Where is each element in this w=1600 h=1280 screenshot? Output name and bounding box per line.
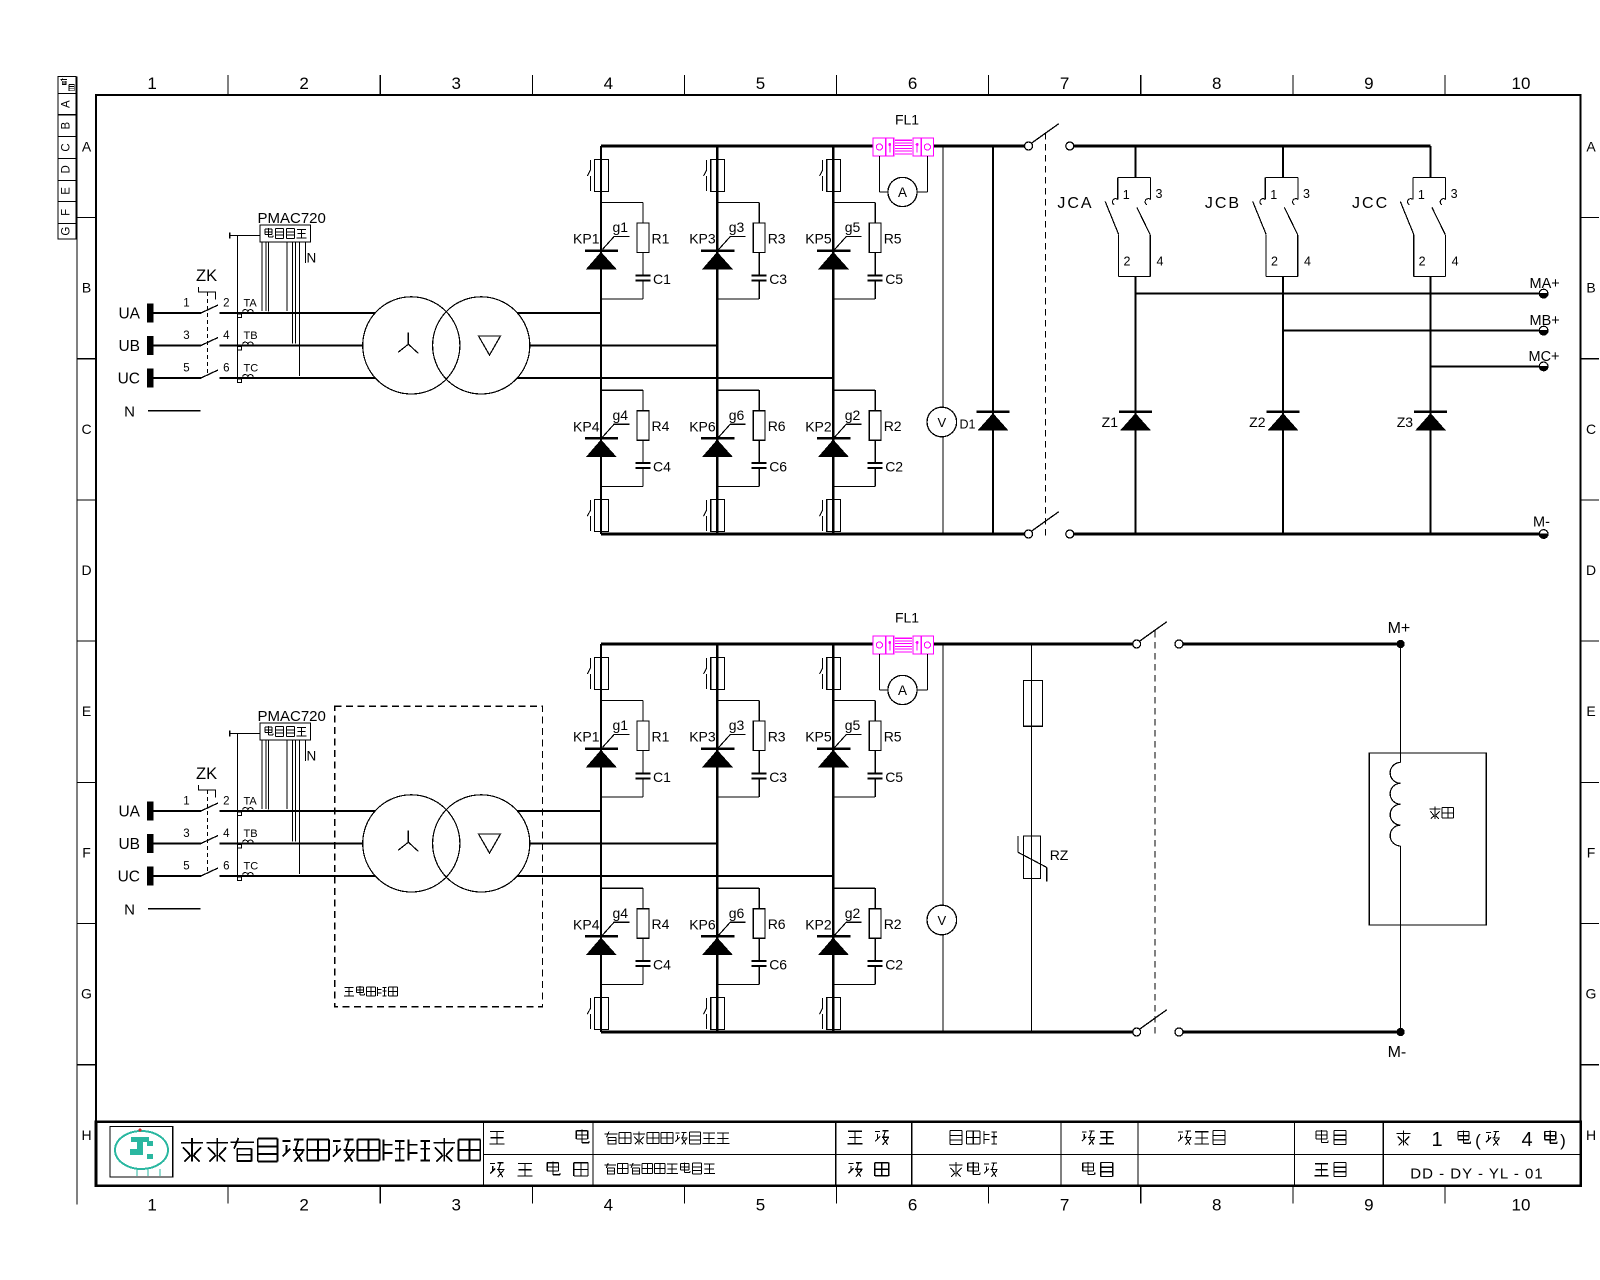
svg-text:2: 2 — [223, 796, 229, 808]
svg-text:KP1: KP1 — [573, 231, 600, 247]
svg-text:E: E — [1586, 703, 1595, 719]
svg-text:R5: R5 — [884, 729, 902, 745]
svg-text:TC: TC — [244, 861, 259, 873]
svg-text:H: H — [81, 1127, 91, 1143]
svg-text:C3: C3 — [769, 769, 787, 785]
svg-text:C6: C6 — [769, 957, 787, 973]
svg-text:N: N — [124, 404, 135, 421]
svg-text:KP3: KP3 — [689, 729, 716, 745]
svg-text:KP2: KP2 — [805, 916, 832, 932]
svg-text:6: 6 — [908, 74, 917, 93]
svg-text:B: B — [82, 280, 91, 296]
svg-text:TA: TA — [244, 796, 258, 808]
svg-text:C6: C6 — [769, 459, 787, 475]
svg-text:A: A — [61, 100, 73, 108]
svg-text:TB: TB — [244, 330, 258, 342]
svg-text:G: G — [81, 986, 92, 1002]
svg-text:6: 6 — [223, 363, 229, 375]
svg-text:TB: TB — [244, 828, 258, 840]
svg-text:5: 5 — [183, 363, 189, 375]
svg-text:1: 1 — [1431, 1129, 1442, 1151]
svg-text:D1: D1 — [960, 418, 976, 432]
svg-text:4: 4 — [223, 828, 230, 840]
svg-text:g6: g6 — [729, 407, 745, 423]
svg-text:R6: R6 — [768, 418, 786, 434]
svg-text:1: 1 — [183, 796, 189, 808]
svg-text:3: 3 — [1451, 187, 1458, 201]
svg-text:R2: R2 — [884, 916, 902, 932]
svg-text:2: 2 — [299, 74, 308, 93]
svg-text:g3: g3 — [729, 717, 745, 733]
svg-text:M+: M+ — [1388, 620, 1411, 637]
svg-text:C5: C5 — [885, 769, 903, 785]
svg-text:R6: R6 — [768, 916, 786, 932]
svg-text:C2: C2 — [885, 957, 903, 973]
svg-text:R1: R1 — [652, 729, 670, 745]
svg-text:10: 10 — [1511, 1196, 1530, 1215]
svg-text:M-: M- — [1388, 1044, 1407, 1061]
svg-text:3: 3 — [1303, 187, 1310, 201]
svg-text:g1: g1 — [613, 717, 629, 733]
svg-text:3: 3 — [452, 1196, 461, 1215]
svg-text:D: D — [1586, 562, 1596, 578]
svg-text:C: C — [61, 143, 73, 151]
svg-text:H: H — [1586, 1127, 1596, 1143]
svg-text:R4: R4 — [652, 916, 670, 932]
svg-text:KP2: KP2 — [805, 418, 832, 434]
svg-text:5: 5 — [756, 74, 765, 93]
svg-text:JCA: JCA — [1057, 195, 1093, 212]
svg-text:KP5: KP5 — [805, 231, 832, 247]
svg-text:MC+: MC+ — [1529, 349, 1560, 365]
svg-text:2: 2 — [1124, 255, 1131, 269]
svg-text:A: A — [898, 185, 907, 200]
svg-text:JCC: JCC — [1352, 195, 1389, 212]
svg-text:g3: g3 — [729, 219, 745, 235]
svg-text:N: N — [307, 749, 317, 764]
svg-text:A: A — [1586, 138, 1596, 154]
svg-text:2: 2 — [299, 1196, 308, 1215]
svg-text:10: 10 — [1511, 74, 1530, 93]
svg-text:C: C — [81, 421, 91, 437]
svg-text:1: 1 — [1418, 188, 1425, 202]
svg-text:9: 9 — [1364, 74, 1373, 93]
svg-text:F: F — [82, 844, 91, 860]
svg-text:ZK: ZK — [196, 267, 217, 285]
svg-text:JCB: JCB — [1205, 195, 1241, 212]
svg-text:R3: R3 — [768, 231, 786, 247]
svg-text:KP5: KP5 — [805, 729, 832, 745]
svg-text:C4: C4 — [653, 459, 671, 475]
svg-text:6: 6 — [908, 1196, 917, 1215]
svg-text:Z3: Z3 — [1397, 414, 1414, 430]
svg-text:UC: UC — [118, 371, 140, 388]
svg-text:KP4: KP4 — [573, 916, 600, 932]
svg-text:3: 3 — [183, 828, 189, 840]
svg-text:UB: UB — [118, 836, 140, 853]
svg-text:g2: g2 — [845, 905, 861, 921]
svg-text:2: 2 — [1271, 255, 1278, 269]
svg-text:4: 4 — [604, 1196, 613, 1215]
svg-text:KP1: KP1 — [573, 729, 600, 745]
svg-text:G: G — [1586, 986, 1597, 1002]
svg-text:V: V — [937, 913, 946, 928]
svg-text:): ) — [1560, 1131, 1566, 1150]
svg-text:(: ( — [1475, 1131, 1481, 1150]
svg-text:3: 3 — [452, 74, 461, 93]
svg-text:DD - DY - YL - 01: DD - DY - YL - 01 — [1410, 1166, 1543, 1183]
svg-text:7: 7 — [1060, 1196, 1069, 1215]
svg-text:UC: UC — [118, 869, 140, 886]
svg-text:C2: C2 — [885, 459, 903, 475]
svg-text:A: A — [898, 683, 907, 698]
svg-text:R2: R2 — [884, 418, 902, 434]
svg-text:9: 9 — [1364, 1196, 1373, 1215]
svg-text:KP4: KP4 — [573, 418, 600, 434]
svg-text:A: A — [82, 138, 92, 154]
svg-text:g6: g6 — [729, 905, 745, 921]
svg-text:B: B — [61, 122, 73, 130]
svg-text:D: D — [61, 165, 73, 173]
svg-text:C3: C3 — [769, 271, 787, 287]
svg-text:6: 6 — [223, 861, 229, 873]
svg-text:D: D — [81, 562, 91, 578]
svg-text:4: 4 — [1157, 255, 1164, 269]
svg-text:1: 1 — [147, 1196, 156, 1215]
svg-text:MB+: MB+ — [1530, 313, 1560, 329]
svg-text:7: 7 — [1060, 74, 1069, 93]
svg-text:4: 4 — [1521, 1129, 1532, 1151]
svg-text:C: C — [1586, 421, 1596, 437]
svg-text:UB: UB — [118, 338, 140, 355]
svg-text:1: 1 — [1123, 188, 1130, 202]
svg-text:C1: C1 — [653, 769, 671, 785]
svg-text:F: F — [61, 209, 73, 216]
svg-text:FL1: FL1 — [895, 610, 919, 626]
svg-text:UA: UA — [118, 804, 140, 821]
svg-text:g4: g4 — [613, 905, 629, 921]
svg-text:8: 8 — [1212, 1196, 1221, 1215]
svg-text:KP6: KP6 — [689, 418, 716, 434]
svg-text:M-: M- — [1533, 515, 1550, 531]
svg-text:KP3: KP3 — [689, 231, 716, 247]
svg-text:N: N — [124, 902, 135, 919]
svg-text:g5: g5 — [845, 717, 861, 733]
svg-text:UA: UA — [118, 306, 140, 323]
svg-text:g5: g5 — [845, 219, 861, 235]
svg-text:F: F — [1587, 844, 1596, 860]
svg-text:R1: R1 — [652, 231, 670, 247]
svg-text:1: 1 — [147, 74, 156, 93]
svg-text:2: 2 — [1419, 255, 1426, 269]
svg-text:5: 5 — [756, 1196, 765, 1215]
svg-text:FL1: FL1 — [895, 112, 919, 128]
svg-text:KP6: KP6 — [689, 916, 716, 932]
svg-text:1: 1 — [1270, 188, 1277, 202]
svg-text:3: 3 — [183, 330, 189, 342]
svg-text:C1: C1 — [653, 271, 671, 287]
svg-text:4: 4 — [1304, 255, 1311, 269]
svg-text:C5: C5 — [885, 271, 903, 287]
svg-text:g2: g2 — [845, 407, 861, 423]
svg-text:TC: TC — [244, 363, 259, 375]
svg-text:RZ: RZ — [1050, 847, 1069, 863]
svg-text:4: 4 — [1452, 255, 1459, 269]
svg-text:3: 3 — [1156, 187, 1163, 201]
svg-text:4: 4 — [604, 74, 613, 93]
svg-text:Z2: Z2 — [1249, 414, 1266, 430]
svg-text:4: 4 — [223, 330, 230, 342]
svg-text:ZK: ZK — [196, 765, 217, 783]
svg-text:g1: g1 — [613, 219, 629, 235]
svg-text:V: V — [937, 415, 946, 430]
svg-text:N: N — [307, 251, 317, 266]
svg-text:R3: R3 — [768, 729, 786, 745]
svg-text:R5: R5 — [884, 231, 902, 247]
svg-text:g4: g4 — [613, 407, 629, 423]
svg-text:R4: R4 — [652, 418, 670, 434]
svg-text:TA: TA — [244, 298, 258, 310]
svg-text:B: B — [1586, 280, 1595, 296]
svg-text:1: 1 — [183, 298, 189, 310]
svg-text:C4: C4 — [653, 957, 671, 973]
svg-text:Z1: Z1 — [1102, 414, 1119, 430]
svg-text:2: 2 — [223, 298, 229, 310]
svg-text:E: E — [82, 703, 91, 719]
svg-text:8: 8 — [1212, 74, 1221, 93]
svg-text:5: 5 — [183, 861, 189, 873]
svg-text:G: G — [61, 227, 73, 236]
svg-text:MA+: MA+ — [1530, 276, 1560, 292]
svg-text:E: E — [61, 187, 73, 195]
